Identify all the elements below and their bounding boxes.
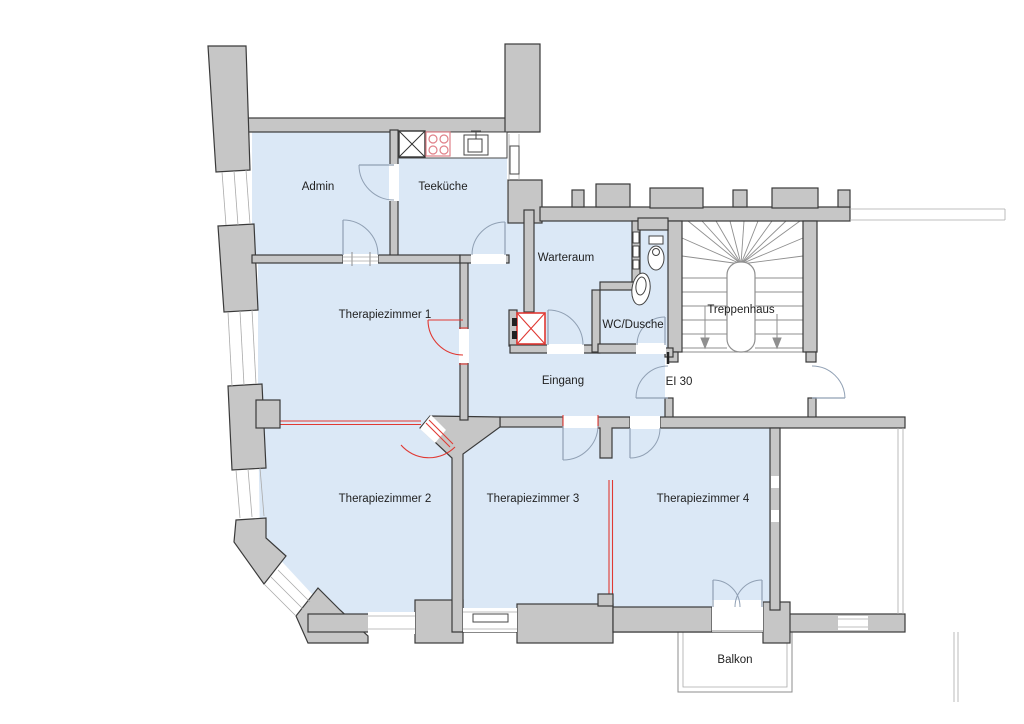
opening-th1-north (343, 252, 378, 266)
window-teekueche-east (509, 134, 519, 180)
shower-panel-icon (633, 232, 639, 269)
label-th2: Therapiezimmer 2 (339, 493, 432, 505)
label-th1: Therapiezimmer 1 (339, 309, 432, 321)
window-south-1 (368, 612, 415, 634)
sink-icon (464, 131, 488, 155)
door-neighbor-entry (812, 366, 845, 398)
room-th2 (258, 422, 452, 622)
label-warteraum: Warteraum (538, 252, 594, 264)
window-south-2-radiator (463, 608, 517, 632)
room-th3 (452, 422, 612, 622)
floor-plan-drawing: Admin Teeküche Warteraum WC/Dusche Thera… (0, 0, 1024, 724)
room-th1 (258, 262, 466, 422)
floor-plan-canvas: Admin Teeküche Warteraum WC/Dusche Thera… (0, 0, 1024, 724)
label-treppenhaus: Treppenhaus (707, 304, 775, 316)
kitchen-counter (398, 131, 507, 158)
label-wc-dusche: WC/Dusche (602, 319, 663, 331)
new-shaft-icon (512, 313, 545, 344)
label-balkon: Balkon (717, 654, 752, 666)
label-th3: Therapiezimmer 3 (487, 493, 580, 505)
staircase (682, 221, 803, 352)
label-teekueche: Teeküche (418, 181, 467, 193)
label-ei30: EI 30 (666, 376, 693, 388)
room-admin (252, 130, 390, 258)
toilet-icon (648, 236, 664, 270)
label-admin: Admin (302, 181, 335, 193)
label-th4: Therapiezimmer 4 (657, 493, 750, 505)
label-eingang: Eingang (542, 375, 584, 387)
window-neighbor-south (838, 616, 868, 630)
